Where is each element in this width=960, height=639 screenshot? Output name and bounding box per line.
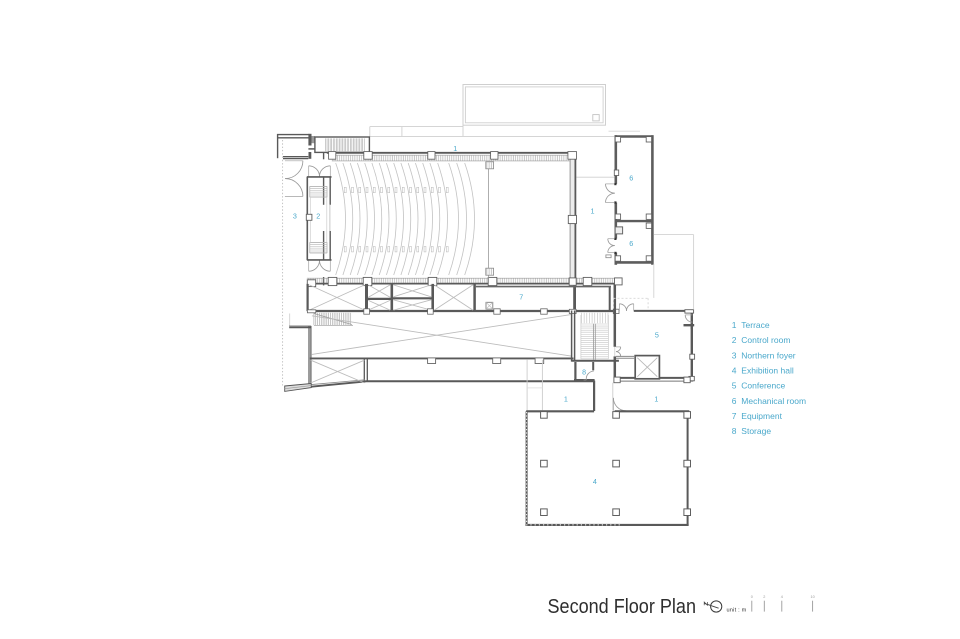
- svg-text:4: 4: [732, 366, 737, 376]
- svg-text:8: 8: [582, 370, 586, 377]
- svg-text:6: 6: [629, 173, 633, 182]
- svg-text:unit : m: unit : m: [727, 607, 747, 613]
- svg-text:0: 0: [751, 595, 753, 599]
- svg-text:Exhibition hall: Exhibition hall: [741, 366, 794, 376]
- svg-text:7: 7: [732, 411, 737, 421]
- svg-text:2: 2: [763, 595, 765, 599]
- svg-text:Storage: Storage: [741, 426, 771, 436]
- svg-text:8: 8: [732, 426, 737, 436]
- svg-text:3: 3: [732, 350, 737, 360]
- svg-text:Second Floor Plan: Second Floor Plan: [548, 596, 697, 618]
- svg-text:5: 5: [655, 331, 659, 340]
- svg-text:Conference: Conference: [741, 381, 785, 391]
- svg-text:1: 1: [732, 320, 737, 330]
- svg-text:3: 3: [293, 212, 297, 221]
- svg-text:1: 1: [453, 144, 457, 153]
- svg-text:2: 2: [732, 335, 737, 345]
- svg-text:10: 10: [810, 595, 814, 599]
- svg-text:Control room: Control room: [741, 335, 790, 345]
- svg-text:6: 6: [629, 239, 633, 248]
- svg-text:Northern foyer: Northern foyer: [741, 350, 795, 360]
- svg-text:4: 4: [593, 477, 597, 486]
- svg-text:Equipment: Equipment: [741, 411, 782, 421]
- svg-text:Terrace: Terrace: [741, 320, 770, 330]
- svg-text:Mechanical room: Mechanical room: [741, 396, 806, 406]
- svg-text:7: 7: [519, 293, 523, 302]
- svg-text:1: 1: [564, 395, 568, 404]
- svg-text:4: 4: [781, 595, 783, 599]
- svg-text:5: 5: [732, 381, 737, 391]
- svg-text:1: 1: [654, 395, 658, 404]
- svg-text:1: 1: [591, 207, 595, 216]
- svg-text:2: 2: [316, 212, 320, 221]
- svg-text:6: 6: [732, 396, 737, 406]
